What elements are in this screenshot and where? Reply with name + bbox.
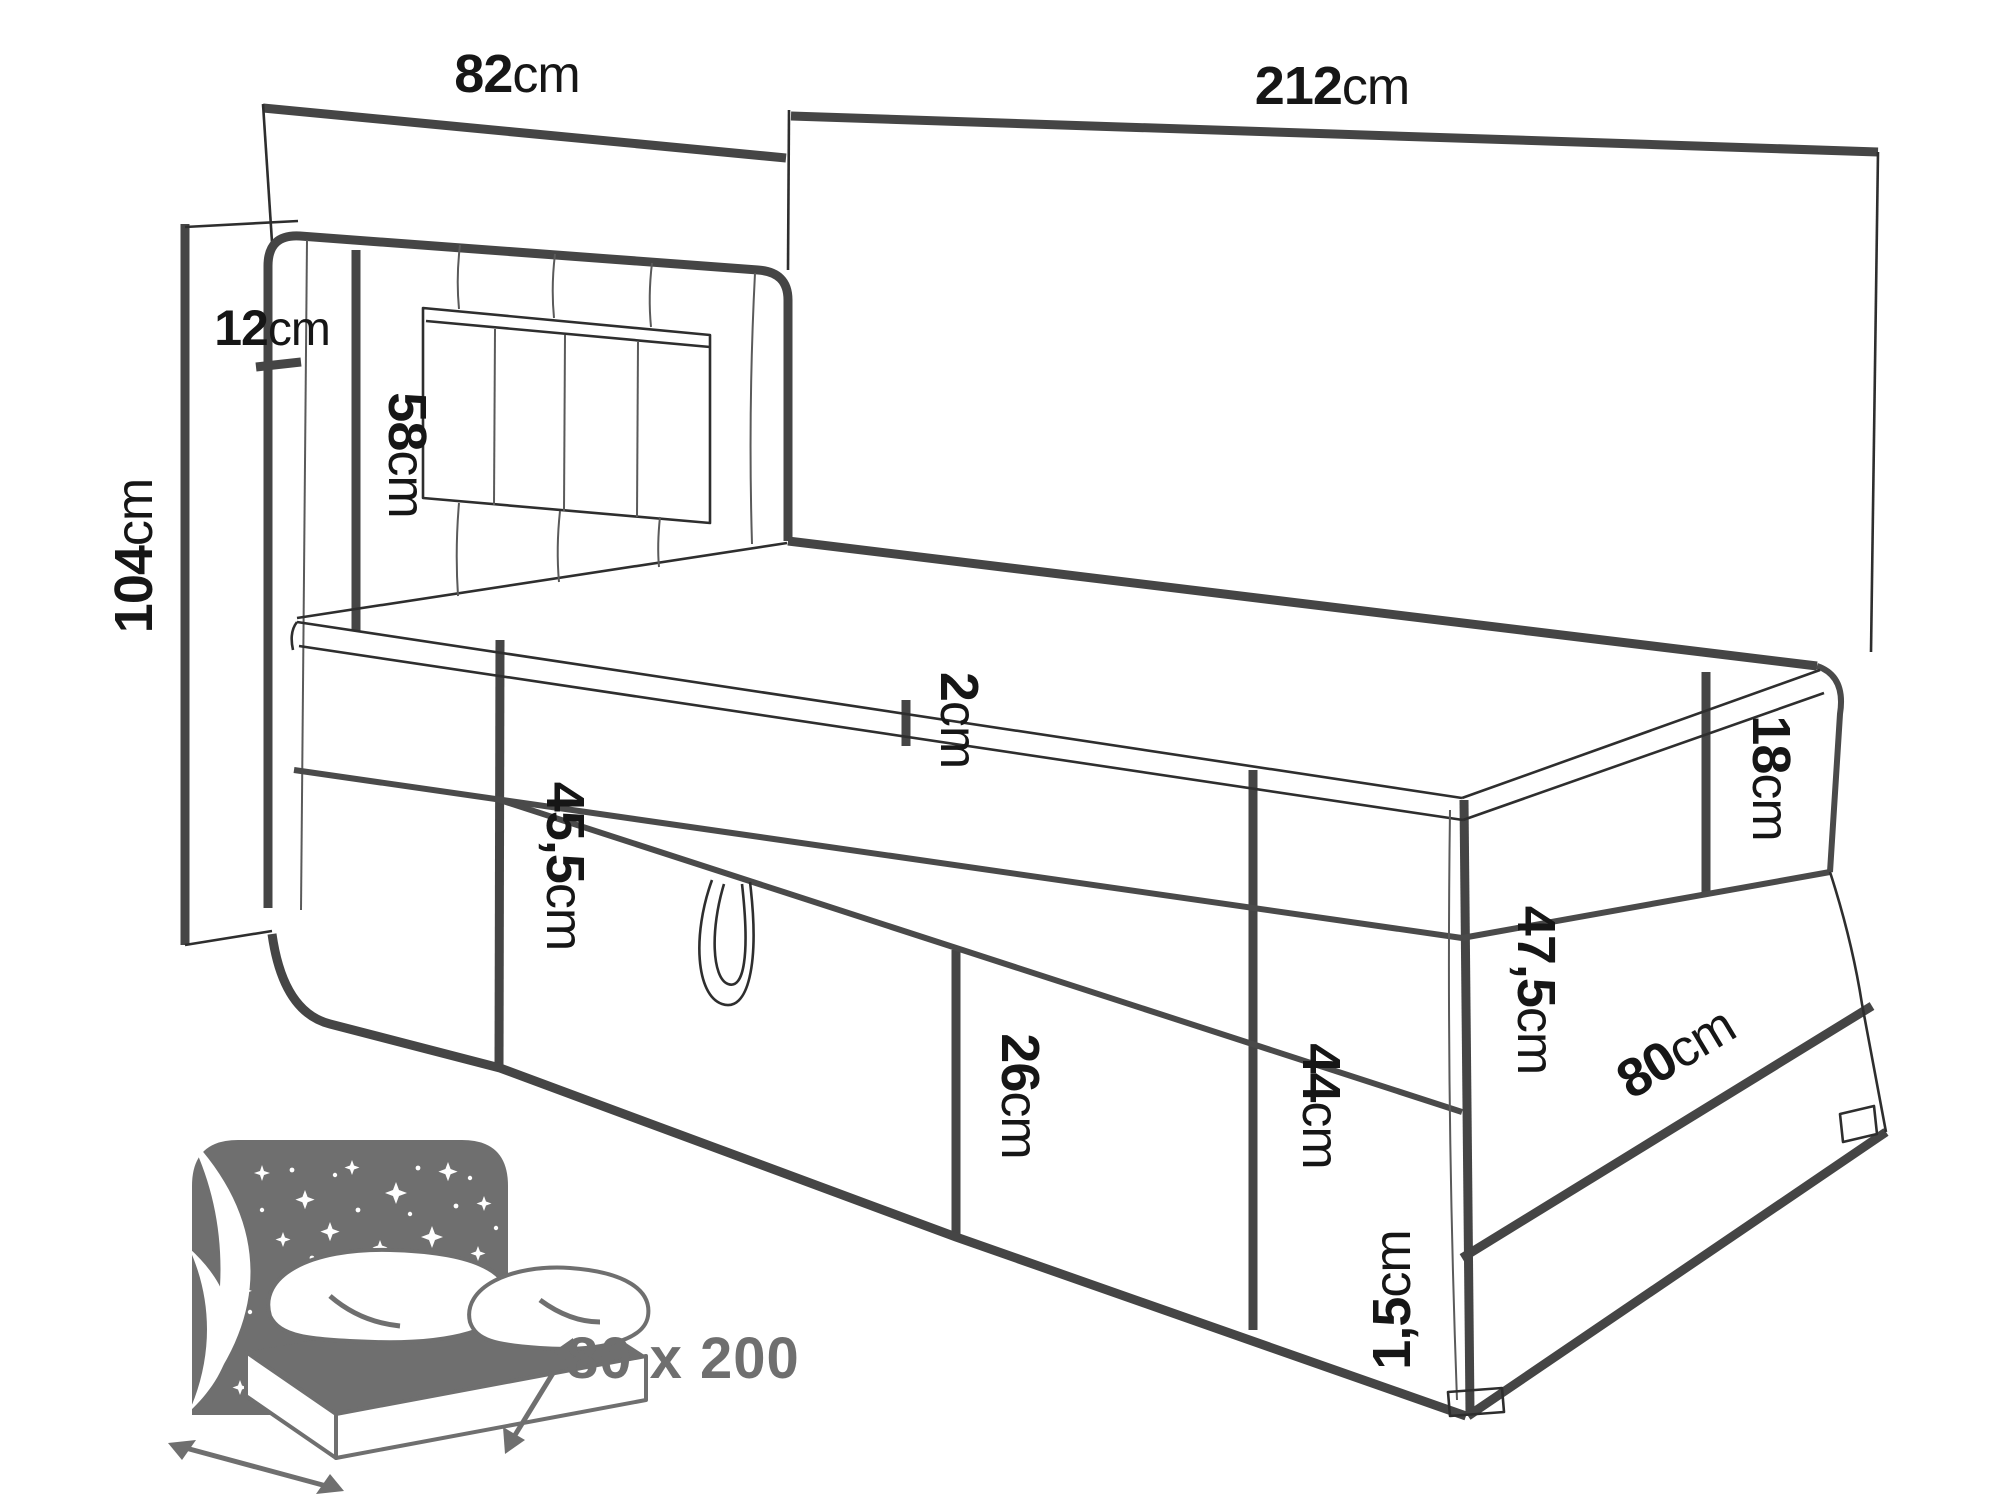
bed-size-icon: 80 x 200	[168, 1136, 800, 1494]
dim-drawer-front-height-label: 26cm	[990, 1033, 1050, 1158]
tufting-seam	[751, 273, 755, 544]
icon-size-label: 80 x 200	[566, 1326, 800, 1391]
dim-line-total-length	[791, 116, 1878, 152]
foot-right-edge	[1830, 872, 1886, 1132]
dim-topper-thickness-label: 2cm	[929, 672, 989, 768]
dim-mattress-height-label: 18cm	[1741, 715, 1801, 840]
dim-tick-junction-82-212	[788, 110, 789, 270]
headboard-niche-inner-edge	[426, 321, 710, 347]
tufting-seam	[553, 254, 555, 318]
bed-line-drawing	[268, 236, 1886, 1416]
mattress-back-edge	[788, 541, 1817, 666]
dim-bracket-side-panel-12	[256, 362, 301, 367]
niche-seam	[494, 329, 495, 505]
dim-total-length-label: 212cm	[1255, 56, 1409, 116]
dim-total-height-label: 104cm	[104, 479, 164, 633]
tufting-seam	[558, 511, 560, 582]
dim-foot-glide-height-label: 1,5cm	[1362, 1230, 1422, 1369]
dim-tick-right-212	[1871, 152, 1878, 652]
tufting-seam	[458, 245, 460, 309]
dim-headboard-height-label: 58cm	[377, 392, 437, 517]
dim-line-side-rail-45-5	[499, 640, 500, 1068]
dim-line-foot-end-47-5	[1464, 800, 1470, 1412]
dimension-diagram-page: 82cm 212cm 104cm 12cm 58cm 2cm 45,5cm 26…	[0, 0, 2000, 1500]
tufting-seam	[650, 263, 652, 327]
dim-headboard-width-label: 82cm	[454, 44, 579, 104]
niche-seam	[637, 342, 638, 517]
foot-glide-rear	[1840, 1106, 1877, 1142]
bed-dimension-diagram: 82cm 212cm 104cm 12cm 58cm 2cm 45,5cm 26…	[0, 0, 2000, 1500]
box-top-seam-front	[294, 770, 1462, 938]
dim-side-panel-depth-label: 12cm	[214, 300, 330, 356]
dim-side-rail-height-label: 45,5cm	[535, 782, 595, 950]
tufting-seam	[457, 503, 459, 596]
dim-tick-top-104	[185, 221, 298, 227]
dim-foot-end-height-label: 47,5cm	[1506, 906, 1566, 1074]
tufting-seam	[658, 517, 660, 567]
headboard-niche	[423, 308, 710, 523]
mattress-corner-bulge	[1817, 666, 1841, 872]
dim-line-headboard-width	[263, 108, 786, 158]
foot-floor-edge	[1468, 1132, 1886, 1416]
dim-front-corner-height-label: 44cm	[1291, 1043, 1351, 1168]
mattress	[292, 541, 1841, 872]
corner-piping	[1449, 810, 1457, 1400]
niche-seam	[564, 335, 565, 511]
drawer-handle-inner	[715, 884, 746, 985]
headboard-mattress-junction	[297, 543, 787, 618]
mattress-front-top-edge	[292, 622, 1462, 798]
floor-line-left	[185, 931, 272, 945]
